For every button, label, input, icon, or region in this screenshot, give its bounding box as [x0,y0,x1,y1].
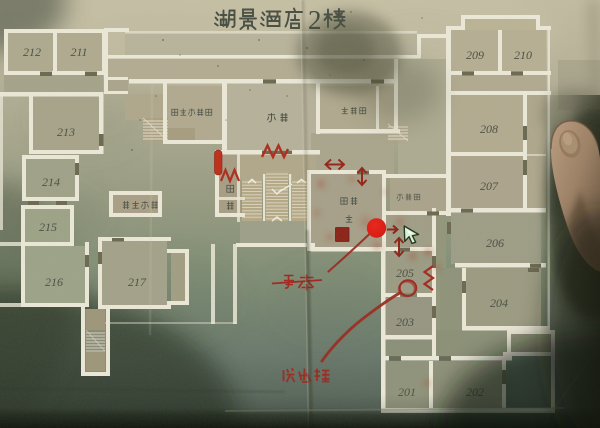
svg-text:2: 2 [308,5,322,35]
